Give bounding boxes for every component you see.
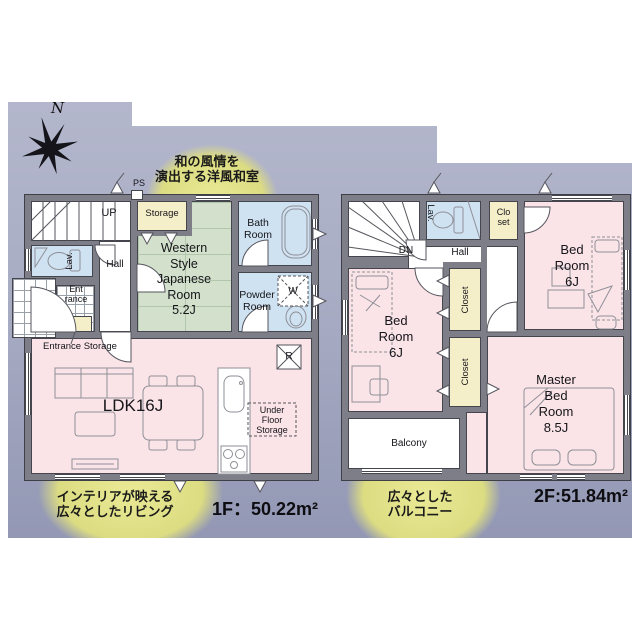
- floor1-area-label: 1F：50.22m²: [170, 495, 318, 521]
- lavatory-label-1f: Lav.: [62, 231, 76, 291]
- window: [25, 353, 31, 415]
- floorplan-page: 和の風情を 演出する洋風和室 インテリアが映える 広々としたリビング 広々とした…: [0, 0, 640, 640]
- window: [552, 195, 612, 201]
- ps-label: PS: [127, 178, 151, 188]
- stairs-up-label: UP: [89, 207, 129, 220]
- entrance-storage-box: [58, 316, 92, 332]
- window: [624, 250, 630, 290]
- north-label: N: [51, 99, 64, 117]
- window: [312, 285, 318, 319]
- closet1-label: Closet: [458, 270, 472, 330]
- hall-label-1f: Hall: [95, 259, 135, 271]
- bath-label: Bath Room: [233, 217, 283, 241]
- wall-segment: [137, 231, 187, 236]
- entrance-storage-label: Entrance Storage: [25, 342, 135, 353]
- window: [557, 474, 585, 480]
- callout-text-living: インテリアが映える 広々としたリビング: [38, 489, 192, 519]
- closet2-label: Closet: [458, 342, 472, 402]
- balcony-rail: [362, 468, 442, 474]
- underfloor-storage-label: Under Floor Storage: [248, 405, 296, 435]
- washer-label: W: [278, 286, 308, 298]
- floor1-plan: UP PS Storage Bath Room Western Style Ja…: [25, 195, 318, 480]
- ps-shaft-box: [131, 190, 143, 200]
- japanese-room-label: Western Style Japanese Room 5.2J: [139, 241, 229, 319]
- bedroom-left-label: Bed Room 6J: [356, 313, 436, 361]
- window: [312, 219, 318, 249]
- storage-label: Storage: [137, 209, 187, 220]
- callout-text-japanese-room: 和の風情を 演出する洋風和室: [146, 154, 268, 184]
- lavatory-label-2f: Lav.: [424, 183, 438, 243]
- stairs-down-label: DN: [390, 245, 422, 257]
- room-master-extension: [466, 412, 487, 474]
- ldk-label: LDK16J: [83, 396, 183, 416]
- callout-text-balcony: 広々とした バルコニー: [350, 489, 490, 519]
- window: [25, 249, 31, 271]
- floor2-area-label: 2F:51.84m²: [482, 486, 628, 507]
- bedroom-right-label: Bed Room 6J: [532, 242, 612, 290]
- entrance-porch: [12, 278, 56, 338]
- fridge-label: R: [277, 351, 301, 363]
- balcony-label: Balcony: [374, 438, 444, 450]
- room-hall-1f: [99, 241, 131, 332]
- window: [196, 195, 230, 201]
- powder-label: Powder Room: [232, 289, 282, 313]
- master-bedroom-label: Master Bed Room 8.5J: [516, 372, 596, 436]
- window: [120, 474, 165, 480]
- floor2-plan: DN Lav. Clo set Hall Bed Room 6J Bed Roo…: [342, 195, 630, 480]
- window: [520, 474, 552, 480]
- hall-label-2f: Hall: [442, 247, 478, 259]
- window: [624, 395, 630, 435]
- closet-top-label: Clo set: [489, 207, 518, 228]
- window: [342, 300, 348, 335]
- wall-segment: [187, 201, 192, 236]
- window: [55, 474, 100, 480]
- entrance-label: Ent rance: [56, 284, 96, 305]
